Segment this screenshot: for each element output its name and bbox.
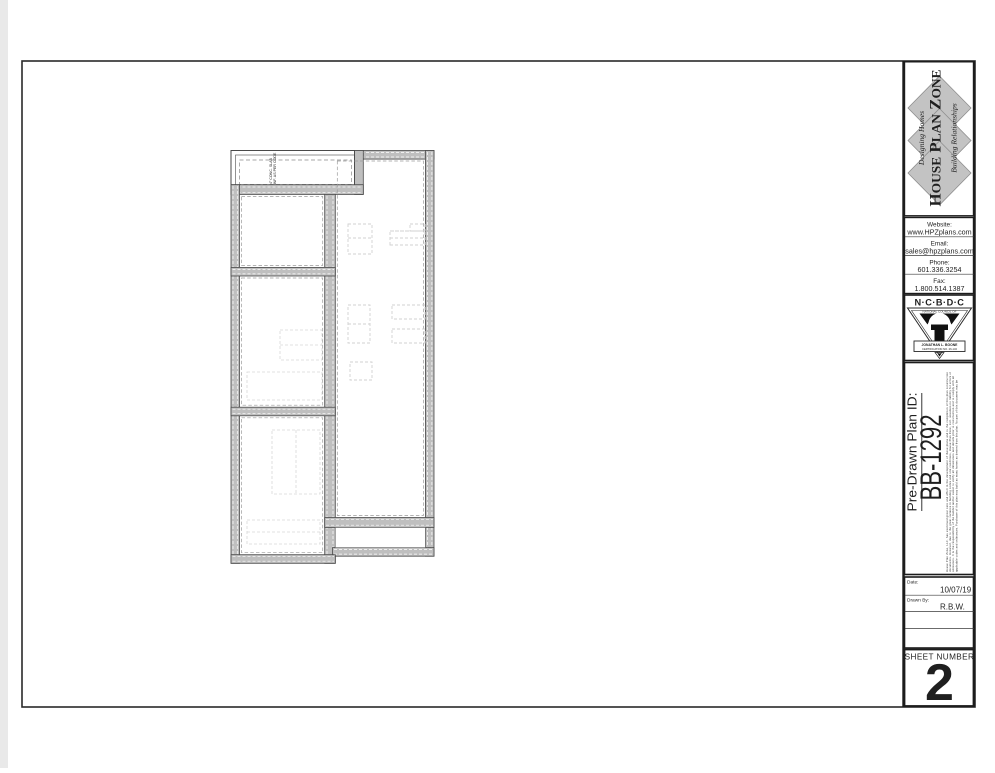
svg-text:Building Relationships: Building Relationships: [950, 103, 959, 172]
svg-text:N·C·B·D·C: N·C·B·D·C: [915, 298, 965, 308]
svg-text:NATIONAL COUNCIL OF: NATIONAL COUNCIL OF: [923, 310, 957, 314]
svg-text:10/07/19: 10/07/19: [940, 586, 972, 595]
svg-text:applicable codes and ordinance: applicable codes and ordinances. Purchas…: [954, 379, 958, 572]
svg-text:HOUSE PLAN ZONE: HOUSE PLAN ZONE: [928, 70, 945, 207]
svg-text:Date:: Date:: [907, 580, 918, 586]
svg-text:Designing Homes: Designing Homes: [917, 111, 926, 166]
svg-text:1.800.514.1387: 1.800.514.1387: [915, 284, 965, 293]
svg-text:REINF. AS PER CODE: REINF. AS PER CODE: [273, 152, 277, 189]
svg-text:R.B.W.: R.B.W.: [940, 603, 965, 612]
svg-text:BB-1292: BB-1292: [915, 415, 948, 501]
svg-text:sales@hpzplans.com: sales@hpzplans.com: [905, 246, 973, 255]
svg-text:601.336.3254: 601.336.3254: [918, 265, 962, 274]
svg-text:www.HPZplans.com: www.HPZplans.com: [906, 228, 971, 237]
svg-text:Drawn By:: Drawn By:: [907, 598, 929, 604]
svg-text:2: 2: [925, 654, 954, 712]
svg-text:JONATHAN L. BOONE: JONATHAN L. BOONE: [922, 343, 959, 347]
svg-text:CERTIFICATION NO. 26-132: CERTIFICATION NO. 26-132: [922, 347, 957, 351]
